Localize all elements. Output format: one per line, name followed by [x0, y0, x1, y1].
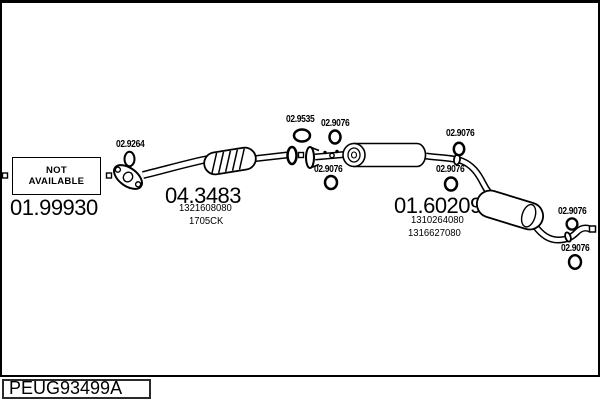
- clamp-ring-mid-top: [454, 143, 464, 155]
- rear-silencer-drawing: [474, 187, 547, 233]
- front-flange-drawing: [110, 160, 146, 193]
- catalog-code: PEUG93499A: [9, 379, 122, 398]
- joint-clamp-bolts-drawing: [323, 150, 338, 158]
- catalytic-converter-code: 1705CK: [189, 217, 223, 228]
- fitting-label-gasket-02-9535: 02.9535: [286, 115, 314, 126]
- catalytic-converter-oem: 1321608080: [179, 204, 232, 215]
- clamp-ring-joint-bottom: [325, 176, 337, 189]
- clamp-ring-joint-top: [330, 131, 341, 144]
- rear-silencer-oem-2: 1316627080: [408, 229, 461, 240]
- fitting-label-clamp-joint-top: 02.9076: [321, 119, 349, 130]
- hanger-square-joint: [299, 153, 304, 158]
- diagram-frame: NOT AVAILABLE 01.99930 04.3483 132160808…: [0, 0, 600, 377]
- pipe-end-flare-drawing: [288, 147, 297, 164]
- middle-silencer-drawing: [343, 144, 426, 167]
- tail-pipe-clamp-drawing: [564, 232, 572, 243]
- clamp-ring-mid-bottom: [445, 178, 457, 191]
- fitting-label-gasket-02-9264: 02.9264: [116, 140, 144, 151]
- gasket-ring-02-9535: [294, 130, 310, 142]
- clamp-ring-tail-bottom: [569, 255, 581, 269]
- fitting-label-clamp-tail-top: 02.9076: [558, 207, 586, 218]
- catalytic-converter-drawing: [203, 146, 258, 176]
- gasket-ring-02-9264: [125, 152, 135, 166]
- rear-silencer-oem-1: 1310264080: [411, 216, 464, 227]
- cat-outlet-pipe-drawing: [252, 155, 287, 159]
- exhaust-diagram-page: NOT AVAILABLE 01.99930 04.3483 132160808…: [0, 0, 600, 400]
- fitting-label-clamp-joint-bottom: 02.9076: [314, 165, 342, 176]
- fitting-label-clamp-tail-bottom: 02.9076: [561, 244, 589, 255]
- fitting-label-clamp-mid-bottom: 02.9076: [436, 165, 464, 176]
- catalog-code-box: PEUG93499A: [2, 379, 151, 399]
- clamp-ring-tail-top: [567, 218, 578, 229]
- hanger-square-left-border: [3, 173, 8, 178]
- hanger-square-na-box: [107, 173, 112, 178]
- hanger-square-tail-end: [590, 226, 596, 232]
- joint-pipe-drawing: [315, 154, 350, 157]
- front-pipe-ref: 01.99930: [10, 196, 98, 219]
- fitting-label-clamp-mid-top: 02.9076: [446, 129, 474, 140]
- not-available-line1: NOT: [13, 165, 100, 176]
- tail-pipe-drawing: [535, 226, 590, 240]
- rear-silencer-ref: 01.60209: [394, 194, 482, 217]
- not-available-box: NOT AVAILABLE: [12, 157, 101, 195]
- not-available-line2: AVAILABLE: [13, 176, 100, 187]
- front-pipe-drawing: [143, 159, 208, 175]
